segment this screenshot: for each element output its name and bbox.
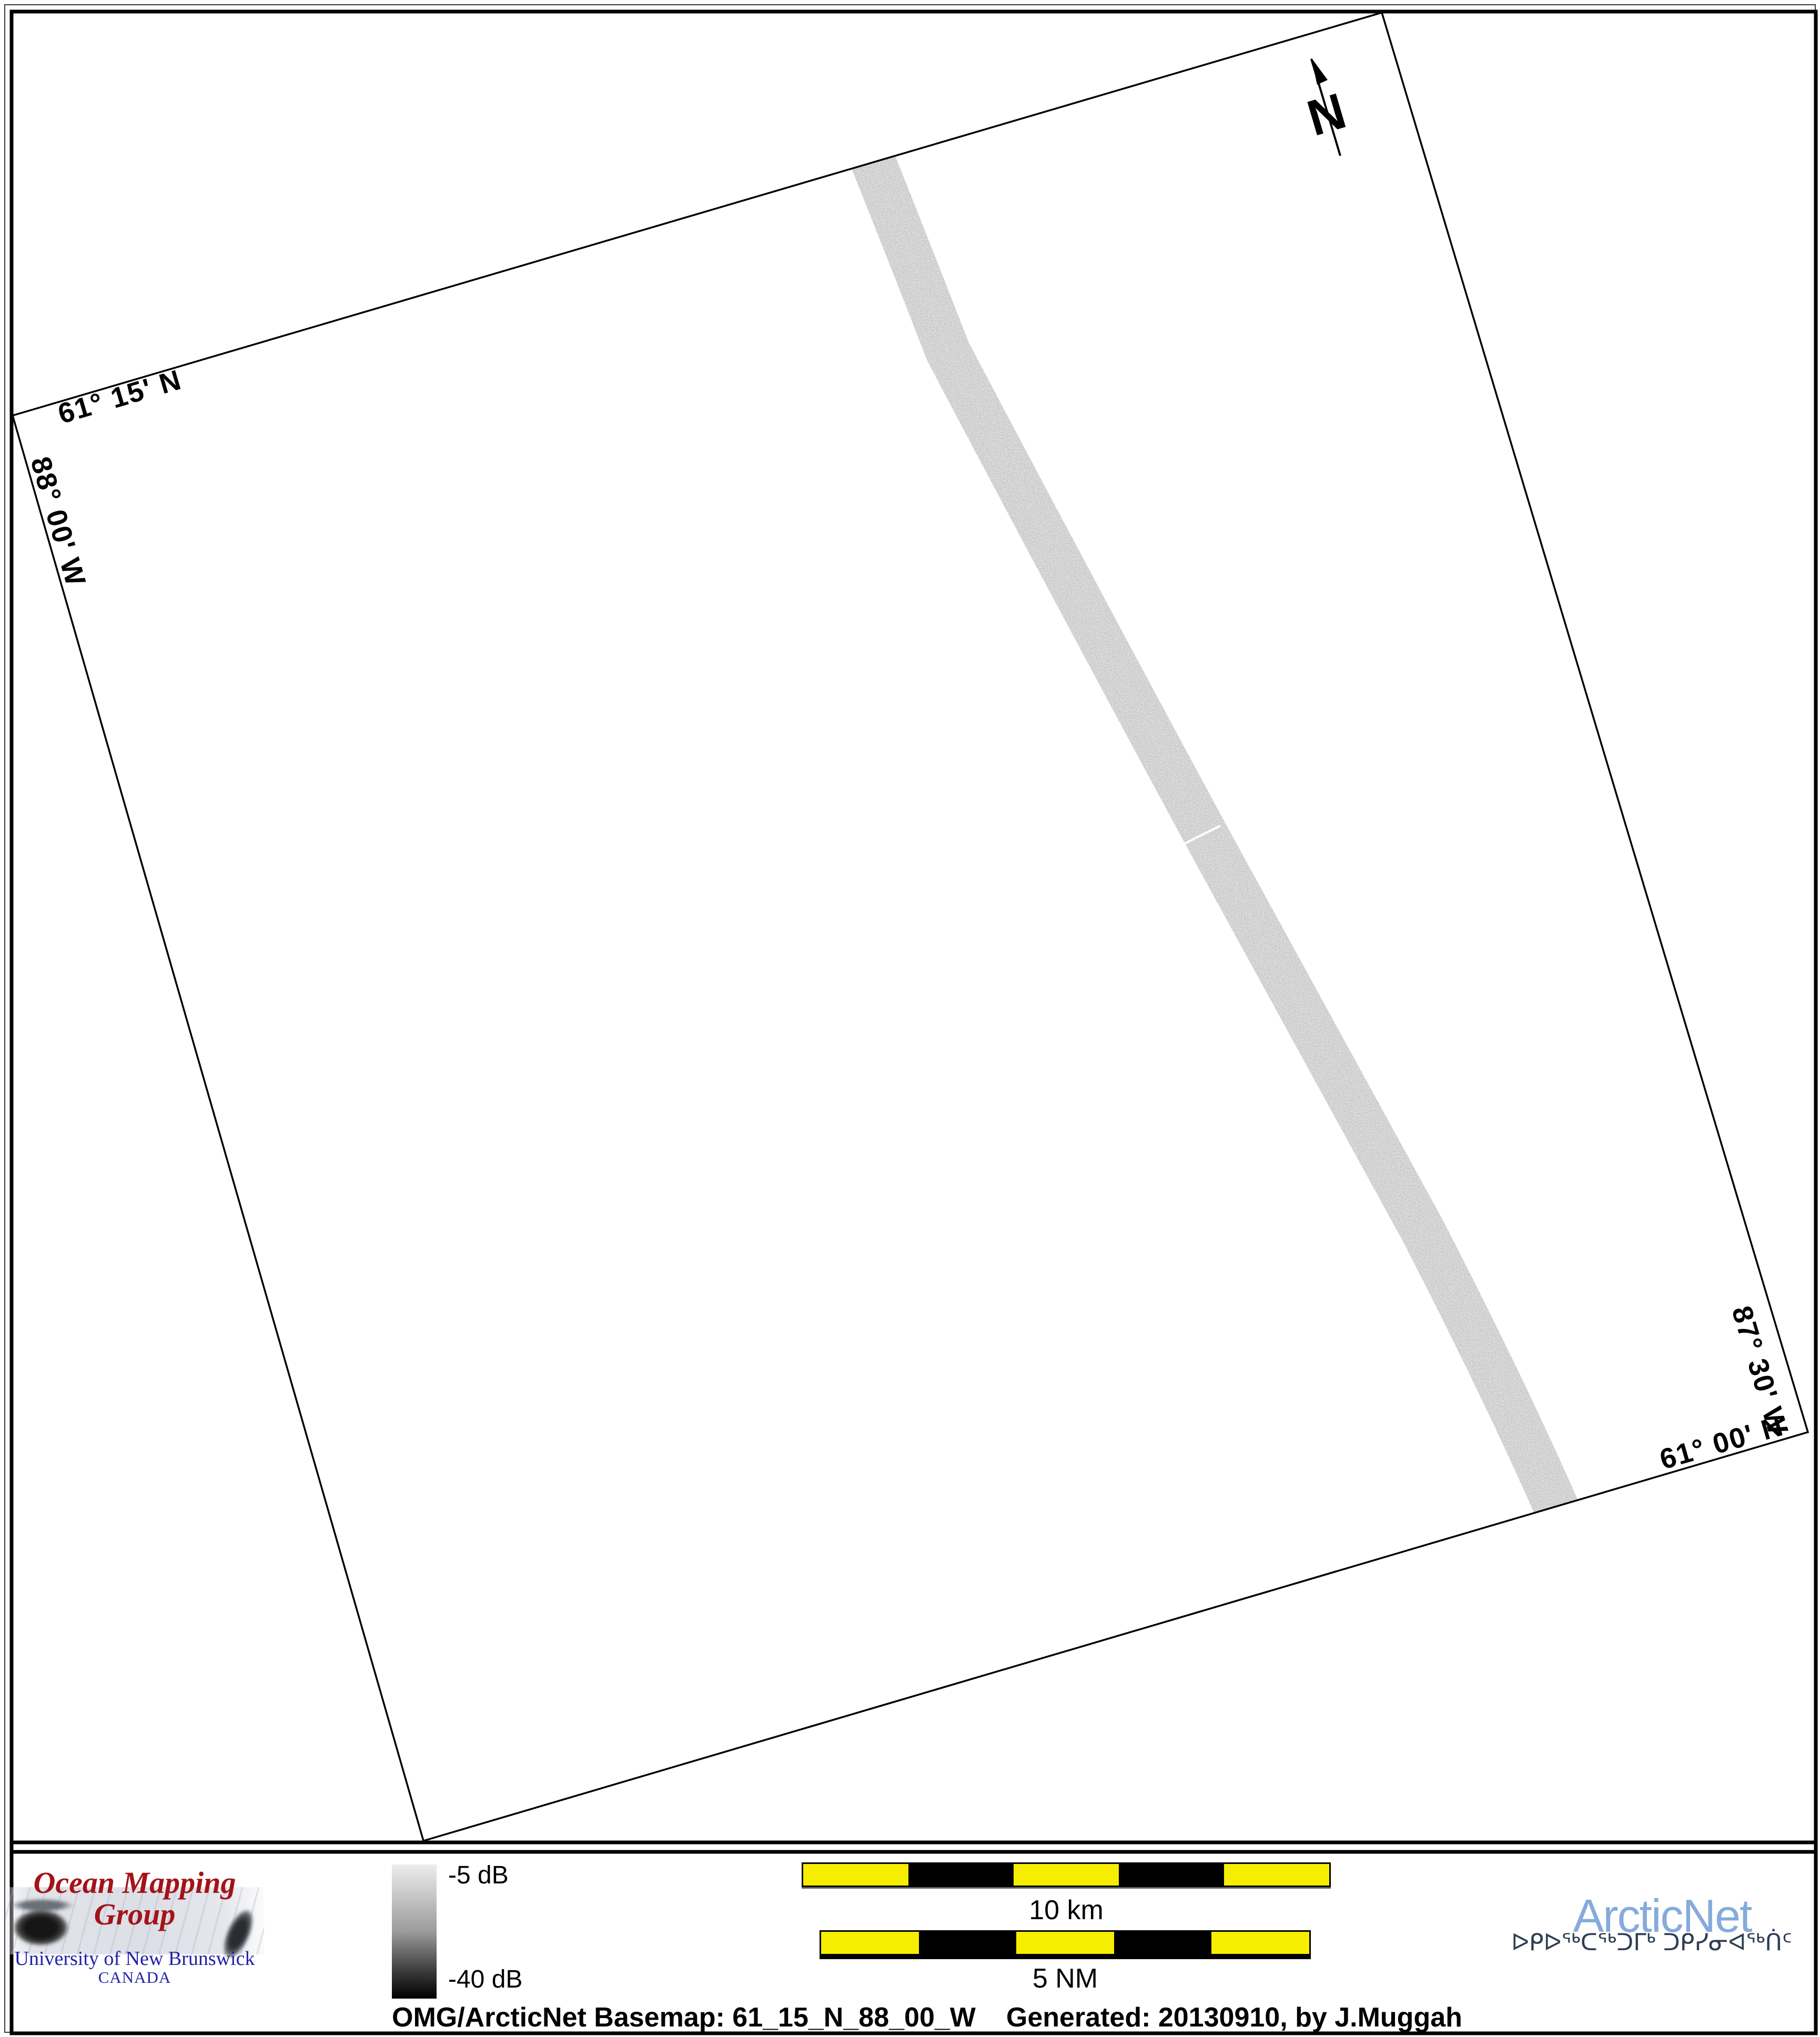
north-arrow-head <box>1311 58 1328 85</box>
scale-bar-segment <box>1224 1864 1329 1886</box>
map-caption: OMG/ArcticNet Basemap: 61_15_N_88_00_WGe… <box>392 2002 1462 2033</box>
scale-bar-segment <box>1014 1864 1119 1886</box>
legend-bottom-label: -40 dB <box>448 1965 522 1994</box>
scale-bar-segment <box>908 1864 1014 1886</box>
label-lat-bottom: 61° 00' N <box>1656 1410 1787 1476</box>
scale-bar-nm <box>820 1930 1311 1955</box>
sonar-swath <box>871 155 1560 1515</box>
scale-bar-nm-label: 5 NM <box>820 1963 1311 1994</box>
scale-bar-km <box>802 1862 1331 1887</box>
map-sheet: 61° 15' N 88° 00' W 87° 30' W 61° 00' N … <box>0 0 1820 2037</box>
scale-bar-segment <box>1114 1932 1212 1954</box>
map-canvas: 61° 15' N 88° 00' W 87° 30' W 61° 00' N … <box>0 0 1820 2037</box>
label-lon-left: 88° 00' W <box>24 453 92 590</box>
scale-bar-segment <box>1119 1864 1224 1886</box>
caption-generated: Generated: 20130910, by J.Muggah <box>1006 2002 1462 2033</box>
omg-logo: Ocean Mapping Group University of New Br… <box>5 1867 264 1984</box>
scale-bar-segment <box>803 1864 908 1886</box>
north-arrow-label: N <box>1301 83 1352 147</box>
scale-bar-segment <box>1016 1932 1114 1954</box>
omg-title: Ocean Mapping Group <box>5 1867 264 1930</box>
label-lat-top: 61° 15' N <box>54 364 185 430</box>
scale-bar-segment <box>1211 1932 1309 1954</box>
omg-university: University of New Brunswick <box>5 1947 264 1970</box>
omg-country: CANADA <box>5 1968 264 1987</box>
scale-bar-segment <box>821 1932 919 1954</box>
backscatter-legend-ramp <box>392 1864 437 1999</box>
arcticnet-inuktitut: ᐅᑭᐅᖅᑕᖅᑐᒥᒃ ᑐᑭᓯᓂᐊᖅᑏᑦ <box>1489 1929 1815 1956</box>
legend-top-label: -5 dB <box>448 1861 509 1890</box>
caption-basemap: OMG/ArcticNet Basemap: 61_15_N_88_00_W <box>392 2002 976 2033</box>
scale-bar-segment <box>919 1932 1017 1954</box>
scale-bar-km-label: 10 km <box>802 1894 1331 1926</box>
north-arrow: N <box>1301 58 1352 156</box>
